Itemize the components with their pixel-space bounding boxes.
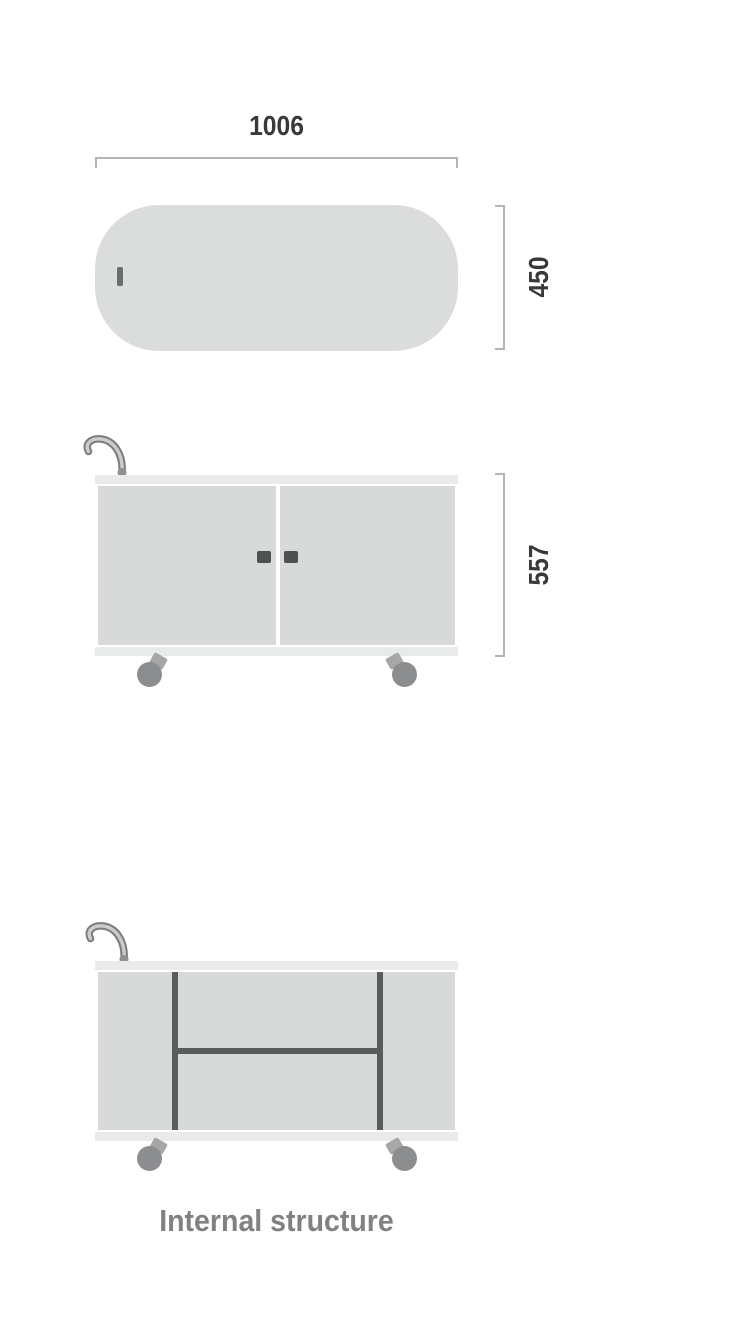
front-top-rail [95,475,458,484]
left-door-handle-icon [257,551,271,563]
front-left-door [98,486,276,645]
front-bottom-rail [95,647,458,656]
dimension-depth-label: 450 [523,237,555,316]
top-view-body [95,205,458,351]
front-right-caster-icon [392,662,417,687]
dimension-width-bracket [95,157,458,168]
dimension-height-label: 557 [523,525,555,604]
dimension-height-bracket [495,473,505,657]
dimension-width-label: 1006 [117,110,436,142]
cord-hook-icon [82,920,132,964]
dimension-depth-bracket [495,205,505,350]
cord-hook-icon [80,433,130,477]
internal-structure-caption: Internal structure [110,1203,444,1239]
internal-left-caster-icon [137,1146,162,1171]
internal-shelf [175,1048,380,1054]
dimension-diagram: 1006 450 557 [0,0,744,1340]
top-view-handle-mark [117,267,123,286]
internal-right-caster-icon [392,1146,417,1171]
front-left-caster-icon [137,662,162,687]
front-right-door [280,486,455,645]
internal-bottom-rail [95,1132,458,1141]
right-door-handle-icon [284,551,298,563]
internal-top-rail [95,961,458,970]
